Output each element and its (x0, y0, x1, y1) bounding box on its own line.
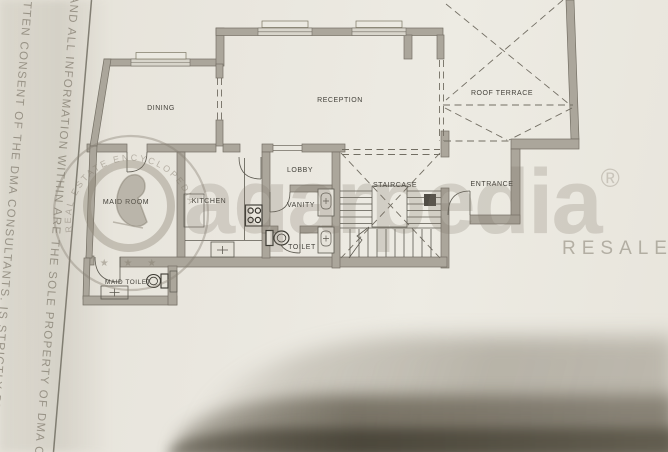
registered-trademark-icon: ® (601, 165, 620, 191)
windows (131, 21, 406, 66)
lobby-opening (273, 146, 302, 151)
room-label-reception: RECEPTION (317, 97, 363, 104)
photo-of-floor-plan-document: AND ALL INFORMATION WITHIN ARE THE SOLE … (0, 0, 668, 452)
watermark-resale-text: RESALE (562, 238, 668, 260)
watermark-brand: aqarpedia (184, 151, 601, 253)
watermark-stars-icon: ★ ★ ★ (100, 258, 162, 269)
watermark-brand-text: aqarpedia® (184, 156, 620, 248)
watermark-bird-icon (113, 175, 147, 228)
room-label-roof-terrace: ROOF TERRACE (471, 90, 533, 97)
room-label-dining: DINING (147, 105, 175, 112)
